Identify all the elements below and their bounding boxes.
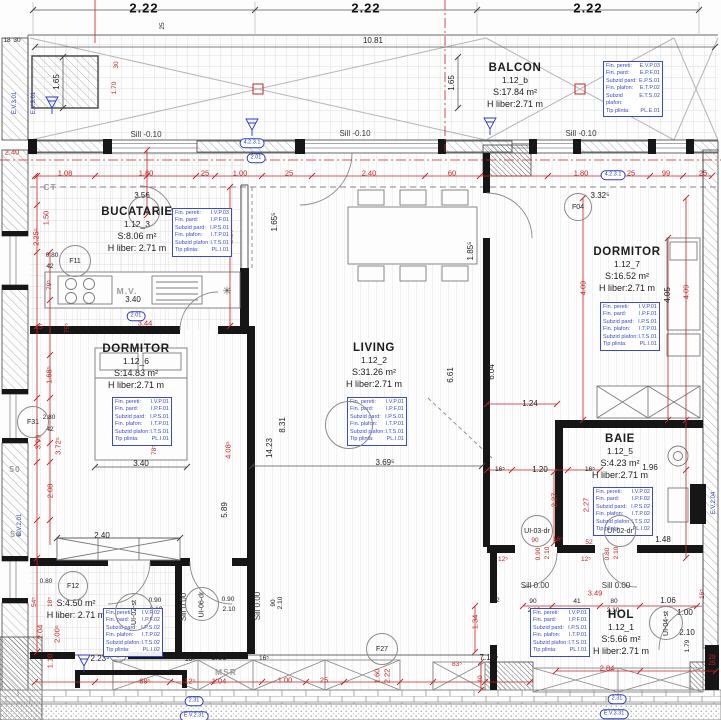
finish-label: Fin. pereti: xyxy=(115,399,141,406)
dim-label: 0.80 xyxy=(40,579,53,586)
room-height: H liber:2.71 m xyxy=(593,646,649,656)
finish-row: Tip plinta:PL.I.01 xyxy=(533,647,587,654)
room-label-living: LIVING1.12_2S:31.26 m²H liber:2.71 m xyxy=(346,342,402,389)
finish-row: Fin. pard:I.P.F.01 xyxy=(175,217,229,224)
dim-label: 2.10 xyxy=(679,629,695,637)
finish-schedule-dormitor-left: Fin. pereti:I.V.P.01Fin. pard:I.P.F.01Su… xyxy=(112,397,172,446)
tag-ui-03-dr: UI-03-dr xyxy=(521,515,553,547)
dim-label: 1.50 xyxy=(42,211,50,226)
finish-code: I.V.P.01 xyxy=(569,610,587,617)
dim-label: 2.27 xyxy=(582,498,590,513)
dim-label: CT xyxy=(43,183,56,192)
tag-f11: F11 xyxy=(59,245,91,277)
dim-label: 1.00 xyxy=(233,169,248,177)
finish-label: Tip plinta: xyxy=(115,436,139,443)
room-label-dormitor-left: DORMITOR1.12_6S:14.83 m²H liber:2.71 m xyxy=(102,343,169,390)
finish-code: I.T.P.01 xyxy=(569,632,587,639)
dim-label: 1.68⁵ xyxy=(45,366,53,384)
finish-row: Fin. pereti:I.V.P.02 xyxy=(596,489,650,496)
dim-label: 1.85⁵ xyxy=(467,242,475,261)
finish-schedule-dormitor-right: Fin. pereti:I.V.P.01Fin. pard:I.P.F.01Su… xyxy=(600,302,660,351)
finish-row: Fin. pard:I.P.F.02 xyxy=(596,496,650,503)
dim-label: 2.27 xyxy=(550,493,558,508)
dim-label: 2.22 xyxy=(351,2,380,15)
finish-row: Fin. plafon:I.T.P.01 xyxy=(603,326,657,333)
room-height: H liber:2.71 m xyxy=(593,283,660,293)
dim-label: MSR xyxy=(215,668,237,677)
tag-f12: F12 xyxy=(58,571,88,601)
tag-text: F27 xyxy=(376,646,388,653)
room-area: S:31.26 m² xyxy=(346,367,402,377)
finish-row: Subzid pard:E.P.S.01 xyxy=(606,78,660,85)
finish-label: Tip plinta: xyxy=(606,108,630,115)
room-id: 1.12_6 xyxy=(102,356,169,366)
dim-label: 2.25⁵ xyxy=(32,228,40,246)
finish-code: I.P.S.01 xyxy=(568,625,587,632)
room-name: DORMITOR xyxy=(102,343,169,355)
finish-schedule-balcon: Fin. pereti:E.V.P.03Fin. pard:E.P.F.01Su… xyxy=(603,61,663,117)
finish-label: Subzid plafon: xyxy=(115,429,150,436)
dim-label: 2.04 xyxy=(36,625,44,640)
finish-code: I.P.F.01 xyxy=(151,406,169,413)
dim-label: 1.10 xyxy=(46,654,54,669)
dim-label: 1.70 xyxy=(112,82,119,95)
dim-label: 6.04 xyxy=(488,364,496,380)
finish-label: Fin. plafon: xyxy=(115,421,142,428)
tag-text: UI-02-dr xyxy=(607,528,633,535)
room-area: S:14.83 m² xyxy=(102,368,169,378)
dim-label: 1.06 xyxy=(660,597,676,605)
dim-label: E.V.2.04 xyxy=(711,492,717,514)
dim-label: 2.40 xyxy=(94,532,110,540)
finish-row: Fin. pereti:I.V.P.03 xyxy=(175,210,229,217)
dim-label: 3.69⁵ xyxy=(376,459,395,467)
dim-label: 10.81 xyxy=(363,37,383,45)
finish-label: Tip plinta: xyxy=(603,341,627,348)
dim-label: 2.40 xyxy=(362,169,377,177)
dim-label: 4.05 xyxy=(664,287,672,303)
dim-label: 3.72⁵ xyxy=(54,437,62,455)
finish-code: PL.E.01 xyxy=(640,108,660,115)
code-pill: 4.2.3.1 xyxy=(601,170,626,180)
tag-ui-02-st: UI-02-st xyxy=(115,593,153,631)
finish-code: E.V.P.03 xyxy=(640,63,661,70)
dim-label: 54⁵ xyxy=(32,597,39,607)
dim-label: 16⁵ xyxy=(185,657,195,664)
room-id: 1.12_5 xyxy=(592,446,648,456)
dim-label: 2.08 xyxy=(46,484,54,499)
dim-label: 60 xyxy=(448,169,456,177)
finish-code: E.T.P.02 xyxy=(640,85,660,92)
finish-code: I.T.S.01 xyxy=(568,640,587,647)
tag-f31: F31 xyxy=(17,406,49,438)
tag-circle xyxy=(128,196,160,228)
finish-code: I.T.S.02 xyxy=(141,640,160,647)
finish-row: Tip plinta:PL.I.01 xyxy=(603,341,657,348)
finish-schedule-hol: Fin. pereti:I.V.P.01Fin. pard:I.P.F.01Su… xyxy=(530,608,590,657)
finish-row: Tip plinta:PL.I.01 xyxy=(115,436,169,443)
finish-row: Fin. pereti:I.V.P.01 xyxy=(533,610,587,617)
dim-label: 1.00 xyxy=(211,654,227,662)
finish-code: I.P.F.01 xyxy=(639,311,657,318)
dim-label: 25 xyxy=(627,169,635,177)
finish-code: I.T.P.01 xyxy=(211,232,229,239)
finish-code: PL.I.01 xyxy=(212,247,229,254)
finish-code: I.T.P.02 xyxy=(142,632,160,639)
finish-label: Subzid pard: xyxy=(603,319,634,326)
finish-label: Fin. pereti: xyxy=(533,610,559,617)
finish-code: I.P.S.01 xyxy=(385,414,404,421)
finish-label: Fin. plafon: xyxy=(606,85,633,92)
room-name: BAIE xyxy=(592,433,648,445)
dim-label: 16⁵ xyxy=(495,467,505,474)
dim-label: 75⁵ xyxy=(65,323,72,333)
dim-label: 41 xyxy=(573,599,580,606)
dim-label: Sill 0.00 xyxy=(521,582,549,590)
room-id: 1.12_1 xyxy=(593,622,649,632)
tag-f04: F04 xyxy=(564,193,592,221)
tag-ui-02-dr: UI-02-dr xyxy=(604,515,636,547)
dim-label: 16⁵ xyxy=(700,589,707,599)
room-height: H liber:2.71 m xyxy=(102,380,169,390)
dim-label: 2.22 xyxy=(129,2,158,15)
dim-label: E.V.3.01 xyxy=(31,92,37,114)
finish-row: Fin. plafon:I.T.P.02 xyxy=(106,632,160,639)
finish-code: I.V.P.01 xyxy=(639,304,657,311)
dim-label: 2.22 xyxy=(573,2,602,15)
finish-row: Subzid pard:I.P.S.01 xyxy=(603,319,657,326)
finish-label: Fin. pard: xyxy=(175,217,198,224)
code-pill: 2.01 xyxy=(247,153,266,163)
dim-label: 0.80 xyxy=(605,548,612,561)
finish-row: Subzid plafon:I.T.S.02 xyxy=(106,640,160,647)
finish-code: PL.I.01 xyxy=(152,436,169,443)
dim-label: M.V. xyxy=(117,287,138,296)
dim-label: 30 xyxy=(13,38,20,45)
room-id: 1.12_2 xyxy=(346,355,402,365)
room-area: S:5.66 m² xyxy=(593,634,649,644)
finish-row: Fin. plafon:I.T.P.01 xyxy=(533,632,587,639)
dim-label: 50 xyxy=(9,465,20,474)
code-pill: 2.01 xyxy=(127,311,146,321)
dim-label: 79⁵ xyxy=(47,280,54,290)
finish-code: I.P.S.02 xyxy=(631,504,650,511)
dim-label: 99 xyxy=(662,169,670,177)
finish-row: Subzid pard:I.P.S.02 xyxy=(596,504,650,511)
finish-label: Fin. pard: xyxy=(596,496,619,503)
tag-text: UI-03-dr xyxy=(524,528,550,535)
finish-code: I.P.F.01 xyxy=(386,406,404,413)
room-area: S:17.84 m² xyxy=(487,87,543,97)
dim-label: 78⁵ xyxy=(152,445,159,455)
finish-code: I.T.P.02 xyxy=(632,511,650,518)
finish-code: I.P.S.01 xyxy=(210,225,229,232)
finish-code: PL.I.01 xyxy=(640,341,657,348)
dim-label: 2.10 xyxy=(278,597,285,610)
dim-label: 25 xyxy=(699,169,707,177)
finish-label: Subzid plafon: xyxy=(175,240,210,247)
tag-text: UI-04-st xyxy=(663,611,670,636)
finish-label: Subzid pard: xyxy=(606,78,637,85)
room-height: H liber: 2.71 m xyxy=(47,610,106,620)
finish-row: Tip plinta:PL.I.02 xyxy=(106,647,160,654)
dim-label: 5.89 xyxy=(221,502,229,518)
finish-label: Subzid plafon: xyxy=(106,640,141,647)
room-height: H liber:2.71 m xyxy=(592,470,648,480)
finish-row: Subzid plafon:I.T.S.01 xyxy=(175,240,229,247)
finish-label: Fin. plafon: xyxy=(106,632,133,639)
finish-label: Subzid pard: xyxy=(533,625,564,632)
finish-code: I.V.P.01 xyxy=(151,399,169,406)
finish-code: E.P.F.01 xyxy=(640,70,660,77)
finish-row: Fin. plafon:E.T.P.02 xyxy=(606,85,660,92)
dim-label: 1.80 xyxy=(139,169,154,177)
dim-label: 40 xyxy=(478,675,485,682)
dim-label: 1.79 xyxy=(685,640,692,653)
dim-label: 8.31 xyxy=(279,417,287,433)
dim-label: 32 xyxy=(492,598,499,605)
dim-label: 14.23 xyxy=(266,438,274,458)
dim-label: 4.08⁵ xyxy=(224,441,232,459)
tag-text: F11 xyxy=(69,258,81,265)
finish-row: Tip plinta:PL.E.01 xyxy=(606,108,660,115)
finish-code: I.V.P.03 xyxy=(211,210,229,217)
finish-code: I.T.P.01 xyxy=(386,421,404,428)
finish-code: I.P.F.02 xyxy=(632,496,650,503)
finish-row: Subzid plafon:E.T.S.02 xyxy=(606,93,660,108)
finish-code: I.P.F.01 xyxy=(569,617,587,624)
dim-label: 1.65 xyxy=(448,75,456,91)
room-id: 1.12_7 xyxy=(593,259,660,269)
finish-code: I.V.P.01 xyxy=(386,399,404,406)
finish-row: Fin. pard:I.P.F.01 xyxy=(603,311,657,318)
finish-row: Subzid pard:I.P.S.01 xyxy=(533,625,587,632)
tag-text: UI-06-dr xyxy=(199,591,206,617)
dim-label: 2.00⁵ xyxy=(53,625,61,643)
tag-ui-04-st: UI-04-st xyxy=(649,606,683,640)
finish-code: E.P.S.01 xyxy=(639,78,660,85)
finish-code: I.P.S.01 xyxy=(638,319,657,326)
dim-label: 1.65 xyxy=(53,74,61,90)
room-area: S:4.23 m² xyxy=(592,458,648,468)
dim-label: Sill -0.10 xyxy=(565,130,596,138)
dim-label: 3.32⁵ xyxy=(591,192,610,200)
dim-label: 1.00 xyxy=(278,676,293,684)
finish-label: Fin. pard: xyxy=(603,311,626,318)
dim-label: 2.10 xyxy=(545,547,552,560)
finish-row: Fin. pard:I.P.F.01 xyxy=(533,617,587,624)
dim-label: 83⁵ xyxy=(452,662,462,669)
finish-label: Fin. pard: xyxy=(606,70,629,77)
dim-label: 3.49 xyxy=(588,589,603,597)
room-label-baie: BAIE1.12_5S:4.23 m²H liber:2.71 m xyxy=(592,433,648,480)
dim-label: 25 xyxy=(320,676,328,684)
finish-row: Tip plinta:PL.I.01 xyxy=(175,247,229,254)
finish-code: I.T.P.01 xyxy=(151,421,169,428)
dim-label: 2.10 xyxy=(223,607,236,614)
tag-text: F04 xyxy=(572,204,584,211)
code-pill: 2.31 xyxy=(608,694,627,704)
room-label-dormitor-right: DORMITOR1.12_7S:16.52 m²H liber:2.71 m xyxy=(593,246,660,293)
dim-label: 1.60 xyxy=(373,669,381,684)
dim-label: 25 xyxy=(35,325,42,332)
finish-code: I.T.S.01 xyxy=(150,429,169,436)
dim-label: 2.84 xyxy=(600,664,615,672)
room-name: DORMITOR xyxy=(593,246,660,258)
dim-label: 25 xyxy=(708,661,715,668)
finish-row: Fin. pereti:E.V.P.03 xyxy=(606,63,660,70)
room-name: LIVING xyxy=(346,342,402,354)
dim-label: 1.80 xyxy=(574,169,589,177)
code-pill: 4.2.3.1 xyxy=(240,138,265,148)
finish-code: I.T.S.01 xyxy=(385,429,404,436)
dim-label: 25 xyxy=(285,169,293,177)
finish-row: Subzid pard:I.P.S.01 xyxy=(115,414,169,421)
dim-label: 2.40 xyxy=(5,148,20,156)
dim-label: 42 xyxy=(46,264,53,271)
dim-label: 16⁵ xyxy=(259,656,269,663)
finish-label: Subzid plafon: xyxy=(606,93,639,108)
room-area: S:8.06 m² xyxy=(101,231,172,241)
room-name: BALCON xyxy=(487,62,543,74)
finish-row: Subzid plafon:I.T.S.01 xyxy=(533,640,587,647)
finish-code: I.P.S.01 xyxy=(150,414,169,421)
finish-label: Subzid pard: xyxy=(175,225,206,232)
finish-code: PL.I.01 xyxy=(570,647,587,654)
dim-label: 12⁵ xyxy=(498,557,508,564)
dim-label: 0.80 xyxy=(46,253,59,260)
finish-label: Tip plinta: xyxy=(175,247,199,254)
dim-label: 1.24 xyxy=(522,400,538,408)
finish-row: Subzid pard:I.P.S.01 xyxy=(175,225,229,232)
tag-text: F12 xyxy=(67,583,79,590)
dim-label: 1.08 xyxy=(58,169,73,177)
finish-code: I.T.S.01 xyxy=(638,334,657,341)
room-height: H liber:2.71 m xyxy=(346,379,402,389)
dim-label: 16⁵ xyxy=(553,537,563,544)
tag-circle xyxy=(325,401,373,449)
dim-label: 2.10 xyxy=(614,547,621,560)
finish-label: Fin. pard: xyxy=(115,406,138,413)
finish-label: Tip plinta: xyxy=(106,647,130,654)
finish-label: Subzid pard: xyxy=(596,504,627,511)
finish-code: I.T.P.01 xyxy=(639,326,657,333)
dim-label: 4.09 xyxy=(579,281,587,296)
dim-label: 80 xyxy=(610,599,617,606)
dim-label: Sill -0.10 xyxy=(130,131,161,139)
finish-row: Fin. pard:I.P.F.01 xyxy=(115,406,169,413)
finish-label: Fin. plafon: xyxy=(533,632,560,639)
dim-label: 0.90 xyxy=(536,548,543,561)
finish-row: Subzid plafon:I.T.S.01 xyxy=(603,334,657,341)
tag-text: F31 xyxy=(27,419,39,426)
dim-label: 89⁵ xyxy=(139,677,150,685)
dim-label: 1.20 xyxy=(532,466,548,474)
finish-row: Fin. pereti:I.V.P.01 xyxy=(115,399,169,406)
finish-label: Fin. pereti: xyxy=(175,210,201,217)
finish-label: Fin. pereti: xyxy=(596,489,622,496)
dim-label: Sill 0.00 xyxy=(254,592,262,620)
finish-label: Fin. pard: xyxy=(533,617,556,624)
code-pill: 2.31 xyxy=(185,696,204,706)
dim-label: 25 xyxy=(201,169,209,177)
dim-label: 4.09 xyxy=(682,285,690,300)
finish-row: Fin. plafon:I.T.P.01 xyxy=(175,232,229,239)
dim-label: 52 xyxy=(585,540,592,547)
room-id: 1.12_b xyxy=(487,75,543,85)
finish-code: I.P.F.01 xyxy=(211,217,229,224)
dim-label: 3.40 xyxy=(133,460,149,468)
dim-label: 1.04 xyxy=(212,677,227,685)
dim-label: 0.90 xyxy=(222,597,235,604)
finish-code: I.V.P.02 xyxy=(632,489,650,496)
finish-row: Subzid plafon:I.T.S.01 xyxy=(115,429,169,436)
dim-label: 1.48 xyxy=(655,536,671,544)
floor-plan-drawing: 2.222.222.2210.811.651.65251830Sill -0.1… xyxy=(0,0,721,720)
tag-ui-06-dr: UI-06-dr xyxy=(185,587,219,621)
dim-label: Sill -0.10 xyxy=(339,130,370,138)
dim-label: 2.22 xyxy=(383,669,391,684)
dim-label: 6.61 xyxy=(447,367,455,383)
dim-label: 25 xyxy=(160,22,167,29)
finish-code: I.T.S.01 xyxy=(210,240,229,247)
finish-label: Fin. plafon: xyxy=(175,232,202,239)
dim-label: 3.40 xyxy=(125,296,141,304)
code-pill: E.V.3.31 xyxy=(600,709,629,719)
room-name: HOL xyxy=(593,609,649,621)
finish-label: Fin. pereti: xyxy=(603,304,629,311)
finish-row: Fin. pard:E.P.F.01 xyxy=(606,70,660,77)
dim-label: ✳ xyxy=(222,287,231,298)
code-pill: E.V.2.31 xyxy=(180,711,209,720)
finish-label: Fin. pereti: xyxy=(606,63,632,70)
dim-label: 12⁵ xyxy=(184,677,195,685)
dim-label: 18 xyxy=(3,38,10,45)
dim-label: 1.65⁵ xyxy=(271,213,279,232)
dim-label: 7.18⁵ xyxy=(480,654,499,662)
finish-row: Fin. plafon:I.T.P.01 xyxy=(115,421,169,428)
finish-code: PL.I.02 xyxy=(143,647,160,654)
finish-label: Subzid pard: xyxy=(115,414,146,421)
finish-label: Fin. plafon: xyxy=(603,326,630,333)
dim-label: Sill 0.00 xyxy=(602,582,630,590)
finish-label: Subzid plafon: xyxy=(533,640,568,647)
dim-label: 30 xyxy=(114,61,121,68)
dim-label: E.V.2.01 xyxy=(17,514,23,536)
finish-code: PL.I.01 xyxy=(387,436,404,443)
room-label-hol: HOL1.12_1S:5.66 m²H liber:2.71 m xyxy=(593,609,649,656)
dim-label: E.V.3.01 xyxy=(12,92,18,114)
finish-label: Subzid plafon: xyxy=(603,334,638,341)
finish-code: E.T.S.02 xyxy=(639,93,660,108)
tag-f27: F27 xyxy=(366,633,398,665)
tag-text: UI-02-st xyxy=(131,600,138,625)
finish-row: Fin. pereti:I.V.P.01 xyxy=(603,304,657,311)
room-height: H liber:2.71 m xyxy=(487,99,543,109)
room-height: H liber: 2.71 m xyxy=(101,243,172,253)
dim-label: 12⁵ xyxy=(581,557,591,564)
dim-label: 1.34 xyxy=(471,615,479,630)
room-label-balcon: BALCON1.12_bS:17.84 m²H liber:2.71 m xyxy=(487,62,543,109)
finish-label: Tip plinta: xyxy=(533,647,557,654)
finish-schedule-bucatarie: Fin. pereti:I.V.P.03Fin. pard:I.P.F.01Su… xyxy=(172,208,232,257)
room-area: S:16.52 m² xyxy=(593,271,660,281)
dim-label: 90 xyxy=(529,599,536,606)
